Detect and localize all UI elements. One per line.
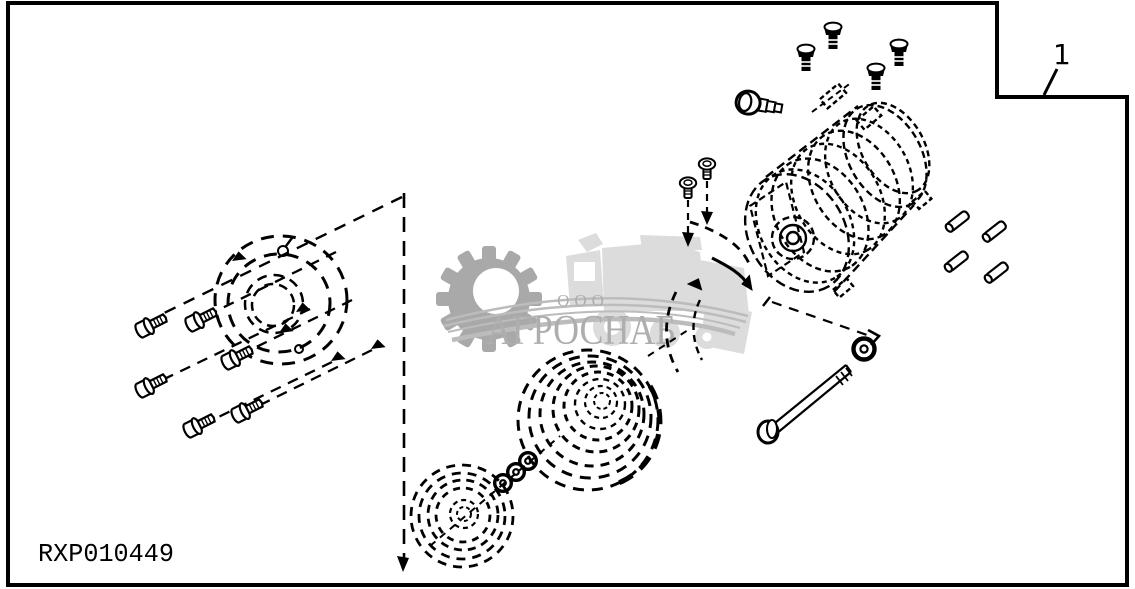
parts-diagram-page: ООО АГРОСНАБ 1 — [0, 0, 1135, 589]
dowel-pins — [943, 210, 1009, 284]
guide-line-diagonal — [158, 197, 402, 316]
guide-arrow-down — [397, 556, 409, 572]
drawing-code: RXP010449 — [38, 539, 174, 569]
dowel-pin — [981, 220, 1007, 243]
side-screws — [680, 158, 715, 247]
through-bolt — [758, 365, 852, 443]
pan-screw — [680, 177, 696, 198]
through-bolt-with-washer — [758, 297, 879, 443]
hex-bolt — [133, 370, 169, 400]
clutch-pulley-large — [518, 350, 660, 490]
callout-1: 1 — [1044, 38, 1071, 95]
hex-bolt — [181, 410, 217, 440]
hex-bolt — [133, 310, 169, 340]
mount-bolt — [797, 45, 815, 71]
flange-hex-bolts — [133, 304, 265, 440]
top-mounting-bolts — [797, 23, 908, 90]
dowel-pin — [983, 261, 1009, 284]
watermark-company-name: АГРОСНАБ — [486, 308, 676, 354]
bolt-washer — [854, 339, 875, 360]
through-bolt-leader — [772, 302, 870, 336]
mount-bolt — [824, 23, 842, 49]
oil-plug-fitting — [734, 89, 783, 120]
compressor-body — [724, 82, 944, 311]
hex-bolt — [183, 304, 219, 334]
dowel-pin — [943, 250, 969, 273]
clutch-pulley-small — [411, 465, 513, 567]
mount-bolt — [867, 64, 885, 90]
callout-1-label: 1 — [1053, 38, 1071, 71]
dowel-pin — [944, 210, 970, 233]
mount-bolt — [890, 40, 908, 66]
hex-bolt — [229, 395, 265, 425]
pan-screw — [699, 158, 715, 179]
mounting-flange-assembly — [133, 193, 409, 572]
watermark: ООО АГРОСНАБ — [436, 233, 752, 354]
exploded-view-drawing: ООО АГРОСНАБ 1 — [0, 0, 1135, 589]
